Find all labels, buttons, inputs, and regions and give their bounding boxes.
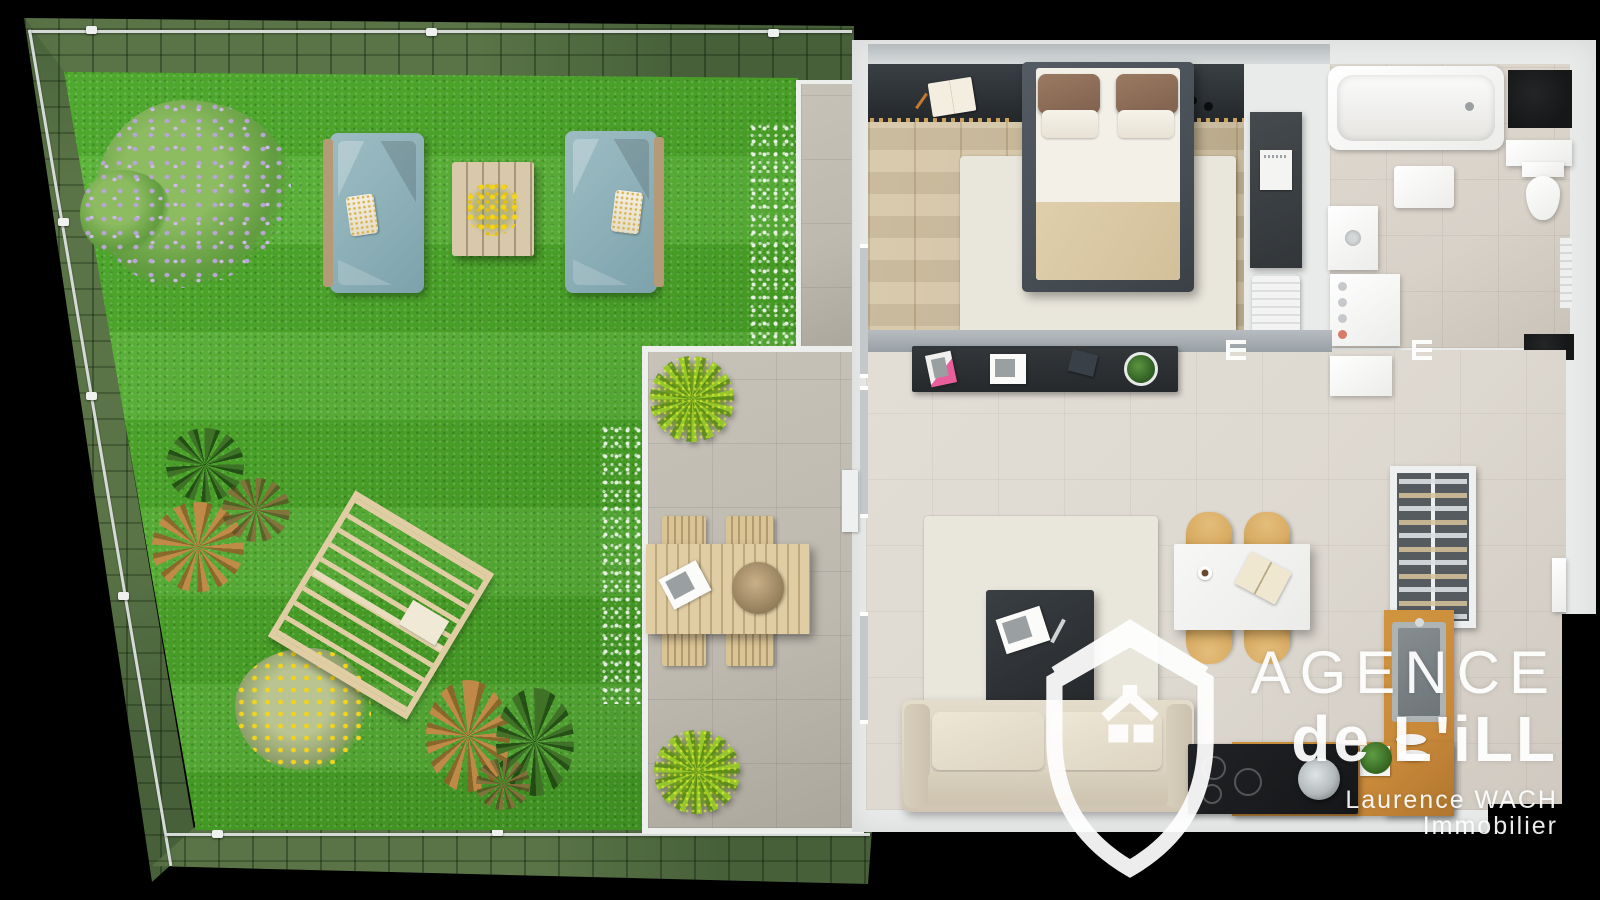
open-book: [928, 77, 977, 117]
tv-sideboard: [912, 346, 1178, 392]
dish-cabinet: [1390, 466, 1476, 628]
outdoor-dining-table: [646, 544, 810, 634]
fence-post: [86, 392, 97, 400]
patterned-pillow: [611, 189, 644, 234]
yellow-flowers: [465, 182, 521, 236]
brand-tagline: Laurence WACH Immobilier: [1210, 788, 1558, 839]
sofa-frame: [323, 139, 333, 287]
magazine: [658, 560, 711, 610]
wardrobe: [1250, 112, 1302, 268]
sofa-armrest: [904, 704, 930, 808]
toilet-tank: [1522, 162, 1564, 177]
fern-plant: [222, 478, 290, 542]
brown-pillow: [1116, 74, 1178, 114]
fence-line-top: [28, 30, 852, 33]
double-bed: [1022, 62, 1194, 292]
terrace-strip: [796, 80, 859, 352]
door-swing-mark: [1226, 340, 1246, 360]
white-pillow: [1118, 110, 1174, 138]
radiator: [1560, 238, 1572, 308]
potted-plant: [650, 356, 734, 442]
notebook: [1234, 551, 1292, 604]
brand-name-line2: de L'iLL: [1210, 707, 1558, 772]
washer-dial: [1338, 298, 1347, 307]
duvet: [1036, 202, 1180, 280]
sofa-frame: [654, 137, 664, 287]
remote: [1068, 349, 1099, 377]
shield-house-icon: [1040, 616, 1220, 878]
washer-dial: [1338, 330, 1347, 339]
fence-post: [58, 218, 69, 226]
sink-basin: [1345, 230, 1361, 246]
fence-post: [768, 29, 779, 37]
brown-pillow: [1038, 74, 1100, 114]
laundry-basket: [1252, 274, 1300, 338]
washer-dial: [1338, 314, 1347, 323]
bathtub: [1328, 66, 1504, 150]
roof-edge: [868, 44, 1330, 64]
sliding-door: [860, 244, 868, 378]
agency-watermark: AGENCE de L'iLL Laurence WACH Immobilier: [1020, 616, 1580, 886]
sliding-door: [860, 386, 868, 518]
washer-dial: [1338, 282, 1347, 291]
fence-post: [212, 830, 223, 838]
ceiling-spot: [1204, 102, 1213, 111]
white-flower-border: [748, 122, 798, 346]
fern-plant: [476, 758, 530, 810]
fence-post: [426, 28, 437, 36]
vanity-sink: [1328, 206, 1378, 270]
potted-plant: [654, 730, 740, 814]
dark-mat: [1508, 70, 1572, 128]
coffee-cup: [1198, 566, 1212, 580]
open-door-leaf: [1330, 356, 1392, 396]
hedge-border-top: [24, 16, 854, 82]
tub-drain: [1465, 102, 1474, 111]
serving-tray: [732, 562, 784, 614]
white-flower-border: [600, 424, 644, 704]
white-pillow: [1042, 110, 1098, 138]
sliding-door: [860, 612, 868, 724]
bath-mat: [1394, 166, 1454, 208]
watermark-text: AGENCE de L'iLL Laurence WACH Immobilier: [1210, 642, 1558, 839]
patterned-pillow: [345, 193, 378, 237]
apartment-garden-floor-plan: AGENCE de L'iLL Laurence WACH Immobilier: [0, 0, 1600, 900]
washing-machine: [1330, 274, 1400, 346]
houseplant: [1124, 352, 1158, 386]
garden-coffee-table: [452, 162, 534, 256]
entry-door-leaf: [1552, 558, 1566, 612]
door-step: [842, 470, 858, 532]
garden-sofa-right: [565, 131, 657, 293]
tablet: [990, 354, 1026, 384]
garden-sofa-left: [330, 133, 424, 293]
fence-post: [118, 592, 129, 600]
fence-post: [86, 26, 97, 34]
poster: [1260, 150, 1292, 190]
brand-name-line1: AGENCE: [1210, 642, 1558, 703]
trim: [870, 118, 1010, 122]
pergola-table: [399, 600, 449, 646]
magazines: [925, 351, 957, 388]
stacked-dishes: [1399, 475, 1467, 619]
door-swing-mark: [1412, 340, 1432, 360]
